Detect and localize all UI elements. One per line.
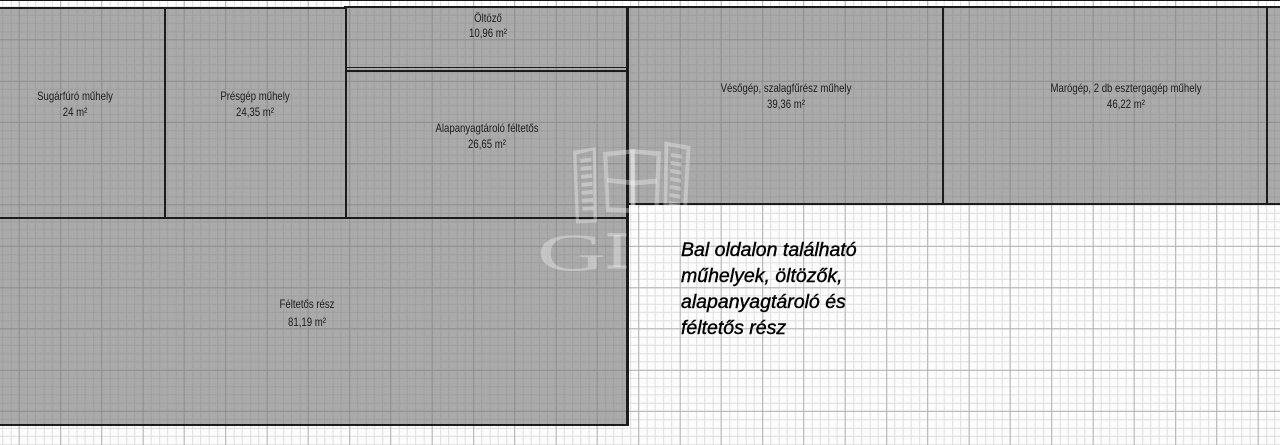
svg-text:G: G	[537, 223, 606, 280]
